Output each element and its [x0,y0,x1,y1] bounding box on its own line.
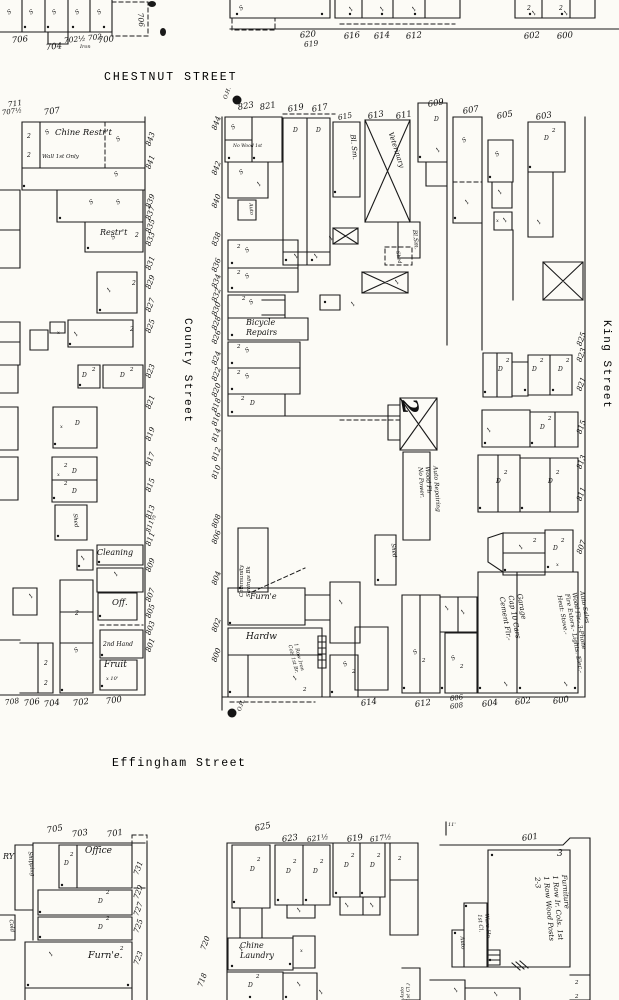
addr-616: 616 [343,30,360,43]
addr-604: 604 [481,698,499,711]
addr-700-top: 700 [97,34,114,47]
mark: 2 [566,358,570,365]
mark: 2 [237,344,241,351]
bldg-furniture-2: Furn'e. [88,950,123,962]
mark: 2 [106,916,110,923]
mark: D [558,366,563,374]
addr-601: 601 [521,832,539,845]
mark: D [544,135,549,143]
mark: D [496,478,501,486]
bldg-auto-1st-cl: 2 Auto (1st Cl.) [400,983,413,1000]
mark: 2 [533,538,537,545]
mark: 2 [75,610,79,618]
bldg-cold: Cold [7,919,15,932]
note-no-wood: No Wood 1st [233,144,262,150]
bldg-cleaning: Cleaning [97,548,133,558]
addr-701: 701 [106,828,124,841]
street-label-king: King Street [600,320,612,409]
bldg-auto-repairing: Auto Repairing Wood Flr No Power. [416,466,442,514]
mark: 2 [377,853,381,860]
mark: D [548,478,553,486]
note-11ft: 11' [448,822,456,828]
mark: D [313,868,318,876]
mark: 2 [132,280,136,288]
addr-706: 706 [23,697,41,710]
addr-612-north: 612 [405,30,422,43]
mark: x [57,472,60,478]
addr-600-south: 600 [552,695,570,708]
street-label-chestnut: CHESTNUT STREET [104,71,238,84]
mark: 2 [130,326,134,334]
bldg-shed-mid: Shed [389,543,397,558]
bldg-shed-left: Shed [71,513,79,528]
bldg-fruit: Fruit [104,660,127,672]
mark: D [120,372,125,380]
note-iron: Iron [80,44,91,50]
mark: x [300,948,303,954]
addr-703: 703 [71,828,89,841]
bldg-furniture-store: Furn'e [250,592,277,602]
mark: 2 [351,853,355,860]
mark: 2 [27,152,31,160]
mark: 2 [460,664,464,671]
mark: 2 [106,890,110,897]
addr-623: 623 [281,833,299,846]
mark: D [553,545,558,553]
addr-702: 702 [72,697,90,710]
ink-blob [160,28,166,36]
mark: D [82,372,87,380]
mark: 2 [27,133,31,141]
mark: 2 [237,270,241,277]
addr-614-north: 614 [373,30,390,43]
addr-619-north: 619 [303,39,318,50]
mark: D [540,424,545,432]
mark: 2 [44,680,48,688]
note-wall-1st-only: Wall 1st Only [42,154,79,161]
mark: 2 [293,859,297,866]
mark: 2 [256,974,260,981]
mark: 2 [303,687,307,694]
mark: D [98,924,103,932]
bldg-office-bottom: Office [85,846,112,858]
bldg-bicycle-repairs: Bicycle Repairs [246,318,277,338]
addr-704-top: 704 [45,41,62,54]
addr-602-north: 602 [523,30,540,43]
bldg-china-laundry: Chine Laundry [240,941,274,961]
mark: 2 [44,660,48,668]
mark: x [60,424,63,430]
addr-612-south: 612 [414,698,432,711]
num-3-story: 3 [557,849,563,861]
addr-706-vert: 706 [135,12,146,27]
mark: 2 [398,856,402,863]
note-x10: x 10' [106,676,118,682]
street-label-effingham: Effingham Street [112,757,246,770]
mark: x [57,330,60,336]
bldg-hardware: Hardw [246,632,277,644]
mark: 2 [556,470,560,477]
mark: D [64,860,69,868]
bldg-auto-strip: Auto [457,936,465,950]
addr-608: 608 [449,701,463,712]
bldg-china-restaurant: Chine Restr't [55,128,112,139]
addr-602-south: 602 [514,696,532,709]
mark: D [75,420,80,428]
mark: D [434,116,439,124]
bldg-ry: RY [3,852,14,862]
mark: D [98,898,103,906]
addr-706-top: 706 [11,34,28,47]
ink-blob [148,1,156,7]
mark: 2 [504,470,508,477]
addr-614-south: 614 [360,697,378,710]
mark: 2 [135,232,139,240]
bldg-office-left: Off. [112,598,128,609]
oh-dot-bottom [228,709,237,718]
addr-707: 707 [43,106,61,119]
mark: 2 [64,463,68,470]
mark: 2 [422,658,426,665]
mark: 2 [237,244,241,251]
mark: D [72,468,77,476]
mark: 2 [130,367,134,374]
mark: D [250,866,255,874]
mark: 2 [242,296,246,303]
addr-619-south: 619 [346,833,364,846]
street-label-county: County Street [181,318,193,423]
mark: D [286,868,291,876]
mark: 2 [548,416,552,423]
mark: D [344,862,349,870]
mark: 2 [257,857,261,864]
mark: 2 [70,852,74,859]
mark: 2 [575,980,579,987]
mark: 2 [561,538,565,545]
bldg-furniture-big: Furniture 1 Row Ir. Cols. 1st 1 Row Wood… [532,874,573,942]
mark: D [498,366,503,374]
mark: x [556,562,559,568]
mark: 2 [540,358,544,365]
mark: 2 [237,370,241,377]
bldg-warehouse: Ware Ho. 1st Cl. [475,913,491,940]
mark: 2 [64,481,68,488]
mark: 2 [320,859,324,866]
addr-704: 704 [43,698,61,711]
mark: 2 [506,358,510,365]
mark: 2 [241,396,245,403]
addr-600-north: 600 [556,30,573,43]
mark: 2 [552,128,556,135]
mark: x [496,218,499,224]
mark: 2 [92,367,96,374]
mark: D [250,400,255,408]
bldg-2nd-hand: 2nd Hand [103,641,133,649]
addr-700: 700 [105,695,123,708]
mark: D [248,982,253,990]
mark: D [370,862,375,870]
bldg-auto-small: Auto [247,203,255,215]
mark: 2 [352,669,356,676]
mark: D [293,127,298,135]
mark: D [532,366,537,374]
addr-708: 708 [4,696,20,707]
mark: D [72,488,77,496]
mark: 2 [575,994,579,1000]
mark: 2 [120,946,124,953]
sanborn-fire-insurance-map: CHESTNUT STREET County Street King Stree… [0,0,619,1000]
mark: D [316,127,321,135]
